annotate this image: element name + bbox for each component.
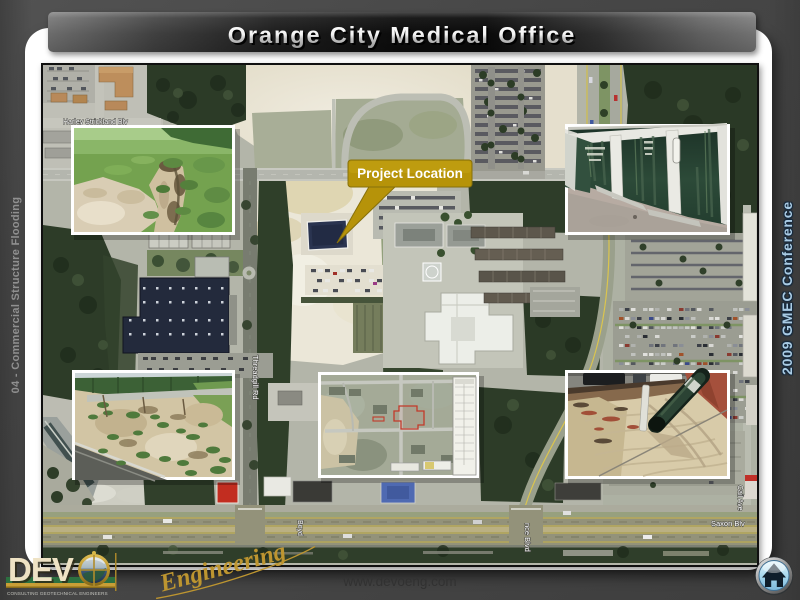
svg-text:DEV: DEV — [8, 551, 74, 588]
svg-text:Threadgill Rd: Threadgill Rd — [251, 355, 260, 400]
svg-text:Cail Ave: Cail Ave — [736, 485, 743, 511]
svg-text:nce Blvd: nce Blvd — [523, 523, 532, 552]
svg-text:Project Location: Project Location — [357, 166, 463, 181]
svg-text:Boyd: Boyd — [296, 520, 303, 536]
svg-text:Orange City Medical Office: Orange City Medical Office — [228, 22, 576, 48]
svg-text:Saxon Blv: Saxon Blv — [711, 519, 745, 528]
svg-text:CONSULTING GEOTECHNICAL ENGI: CONSULTING GEOTECHNICAL ENGINEERS — [7, 591, 108, 596]
svg-text:Harley Strickland Blv: Harley Strickland Blv — [63, 119, 128, 126]
svg-text:Engineering: Engineering — [156, 545, 289, 598]
